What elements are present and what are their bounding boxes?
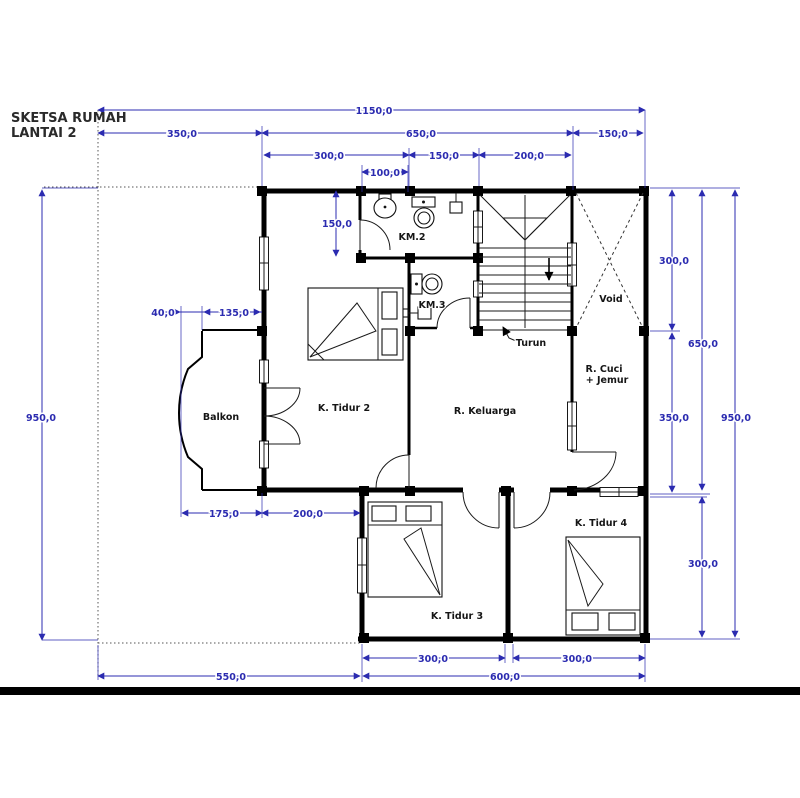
bed-tidur2 xyxy=(308,288,403,360)
dim-km2-height: 150,0 xyxy=(322,219,352,230)
dim-left-balkon: 135,0 xyxy=(219,308,249,319)
dim-row4: 100,0 xyxy=(370,168,400,179)
dim-bottom-tidur3: 300,0 xyxy=(418,654,448,665)
window-tidur3-left xyxy=(358,538,367,593)
label-km2: KM.2 xyxy=(398,232,425,243)
toilet-km3 xyxy=(411,274,442,294)
label-r-keluarga: R. Keluarga xyxy=(454,406,516,417)
title-line2: LANTAI 2 xyxy=(11,126,77,141)
void-cross xyxy=(576,193,643,328)
bed-tidur3 xyxy=(368,502,442,597)
window-keluarga-right xyxy=(568,402,577,450)
dim-top-right: 150,0 xyxy=(598,129,628,140)
window-tidur2-left-2 xyxy=(260,360,269,383)
dim-bottom-left-total: 550,0 xyxy=(216,672,246,683)
door-tidur3 xyxy=(463,492,499,528)
balkon-outline xyxy=(179,330,262,490)
shower-km2 xyxy=(450,193,462,213)
label-k-tidur4: K. Tidur 4 xyxy=(575,518,628,529)
door-km2 xyxy=(360,220,390,250)
dim-top-mid: 650,0 xyxy=(406,129,436,140)
door-cuci xyxy=(572,452,616,490)
label-k-tidur3: K. Tidur 3 xyxy=(431,611,483,622)
dim-top-total: 1150,0 xyxy=(356,106,393,117)
dim-row3-right: 200,0 xyxy=(514,151,544,162)
turun-leader-line xyxy=(503,327,516,341)
dim-right-cuci: 350,0 xyxy=(659,413,689,424)
toilet-km2 xyxy=(412,197,435,228)
label-void: Void xyxy=(599,294,622,305)
title-line1: SKETSA RUMAH xyxy=(11,111,127,126)
dim-bottom-tidur2: 200,0 xyxy=(293,509,323,520)
bed-tidur4 xyxy=(566,537,640,635)
windows xyxy=(260,211,639,593)
label-km3: KM.3 xyxy=(418,300,445,311)
door-tidur2-keluarga xyxy=(376,455,409,488)
dim-row3-left: 300,0 xyxy=(314,151,344,162)
dim-left-total: 950,0 xyxy=(26,413,56,424)
label-r-cuci-line2: + Jemur xyxy=(586,375,629,386)
label-r-cuci-line1: R. Cuci xyxy=(585,364,622,375)
sink-km2 xyxy=(374,194,396,218)
label-balkon: Balkon xyxy=(203,412,239,423)
dim-bottom-balkon: 175,0 xyxy=(209,509,239,520)
reference-dotted-lines xyxy=(44,110,360,676)
dim-right-total: 950,0 xyxy=(721,413,751,424)
dim-row3-mid: 150,0 xyxy=(429,151,459,162)
window-cuci-bottom xyxy=(600,488,638,497)
floor-plan-canvas: 1150,0 350,0 650,0 150,0 300,0 150,0 200… xyxy=(0,0,800,798)
floor-plan-page: 1150,0 350,0 650,0 150,0 300,0 150,0 200… xyxy=(0,0,800,798)
window-km3-stairs xyxy=(474,281,483,297)
bottom-black-strip xyxy=(0,687,800,695)
door-balkon-double xyxy=(264,388,300,444)
dim-right-main: 650,0 xyxy=(688,339,718,350)
window-tidur2-left-3 xyxy=(260,441,269,468)
window-stairs-right xyxy=(568,243,577,286)
dim-left-offset: 40,0 xyxy=(151,308,175,319)
dim-right-lower: 300,0 xyxy=(688,559,718,570)
dim-right-void: 300,0 xyxy=(659,256,689,267)
window-km2-stairs xyxy=(474,211,483,243)
label-k-tidur2: K. Tidur 2 xyxy=(318,403,370,414)
label-turun: Turun xyxy=(516,338,547,349)
dim-bottom-tidur4: 300,0 xyxy=(562,654,592,665)
dim-bottom-right-total: 600,0 xyxy=(490,672,520,683)
window-tidur2-left-1 xyxy=(260,237,269,290)
dim-top-left: 350,0 xyxy=(167,129,197,140)
drawing-title: SKETSA RUMAH LANTAI 2 xyxy=(11,111,127,141)
stairs xyxy=(479,195,571,341)
door-tidur4 xyxy=(514,492,550,528)
